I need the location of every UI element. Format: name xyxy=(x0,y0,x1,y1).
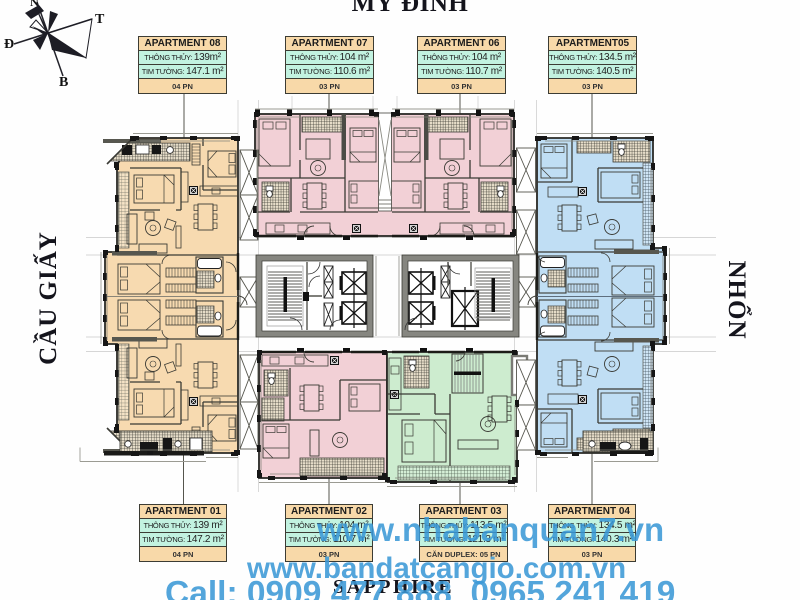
svg-text:N: N xyxy=(30,0,39,9)
svg-text:T: T xyxy=(95,12,105,27)
svg-text:B: B xyxy=(59,75,68,90)
svg-text:Đ: Đ xyxy=(4,37,14,52)
